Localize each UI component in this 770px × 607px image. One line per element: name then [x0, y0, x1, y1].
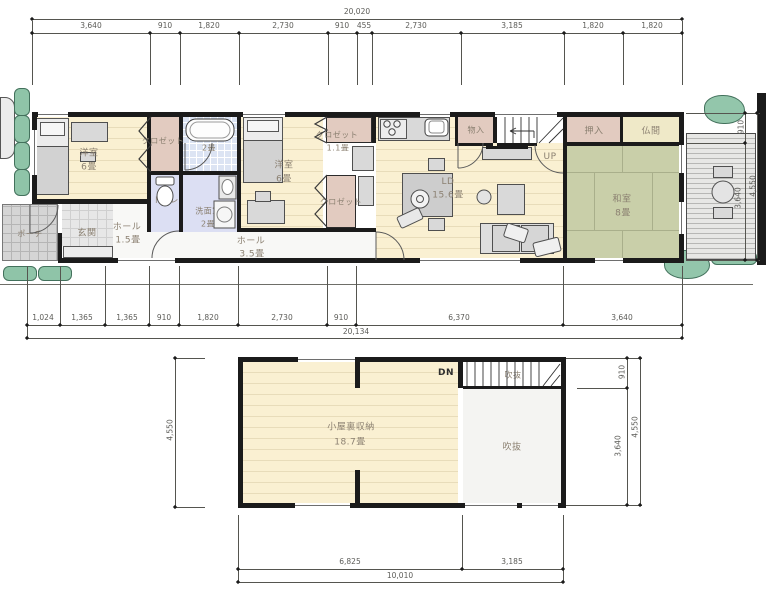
door-arc-bath [185, 143, 212, 170]
stove-burner [394, 121, 400, 127]
stove-burner [389, 129, 395, 135]
ottoman [533, 237, 562, 257]
vanity-sink [222, 180, 233, 195]
door-arc-ld [376, 232, 404, 260]
stairs-2f-treads [467, 362, 560, 386]
toilet-tank [156, 177, 174, 185]
door-arc-monoire [458, 143, 483, 168]
stool [397, 207, 424, 228]
zigzag-door [315, 117, 327, 143]
sofa-pillow [503, 223, 528, 243]
floor-plan-canvas: 20,020 3,640 910 1,820 2,730 910 455 2,7… [0, 0, 770, 607]
door-arc-toilet [152, 231, 179, 258]
zigzag-door [139, 117, 151, 172]
table-plate [411, 190, 429, 208]
stove-burner [384, 121, 390, 127]
toilet-bowl [157, 186, 173, 206]
plan-annotations-svg [0, 0, 770, 607]
zigzag-door [315, 175, 327, 227]
door-arc-stairs [535, 145, 563, 173]
door-arc-front [30, 205, 58, 233]
plant [477, 190, 491, 204]
stairs-1f-treads [505, 117, 563, 143]
deck-table [712, 181, 734, 203]
fixtures [156, 119, 734, 257]
